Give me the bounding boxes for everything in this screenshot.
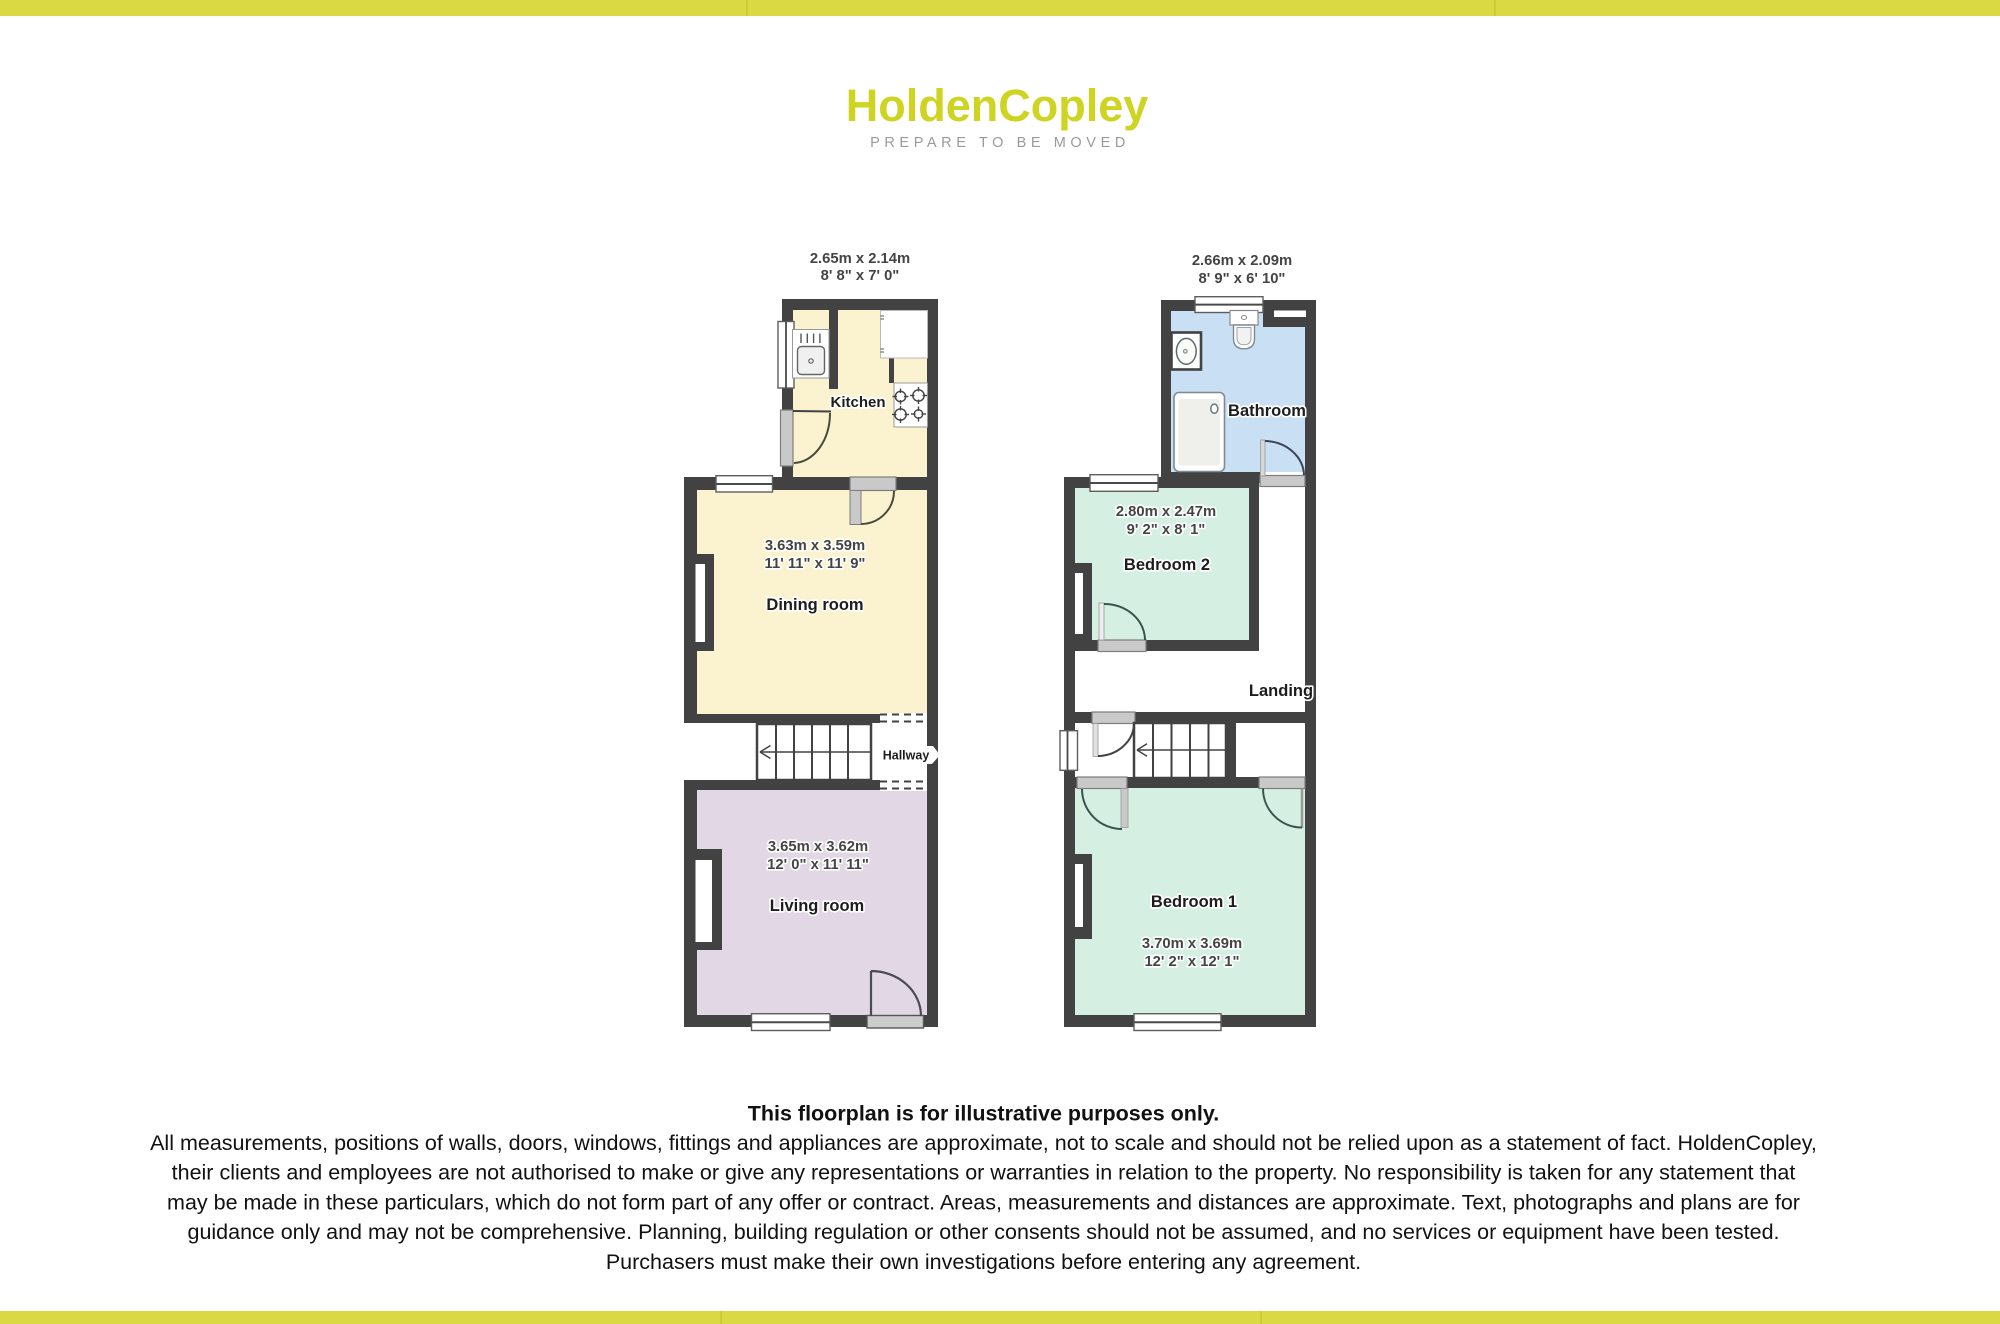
svg-text:Living room: Living room <box>770 897 864 915</box>
svg-text:9' 2" x 8' 1": 9' 2" x 8' 1" <box>1127 522 1206 538</box>
svg-text:their clients and employees ar: their clients and employees are not auth… <box>172 1161 1796 1185</box>
svg-text:Bedroom 2: Bedroom 2 <box>1124 556 1210 574</box>
svg-text:Bedroom 1: Bedroom 1 <box>1151 893 1237 911</box>
svg-text:8' 8" x 7' 0": 8' 8" x 7' 0" <box>821 268 900 284</box>
svg-text:may be made in these particula: may be made in these particulars, which … <box>167 1191 1800 1215</box>
svg-text:Hallway: Hallway <box>883 749 930 763</box>
svg-text:All measurements, positions of: All measurements, positions of walls, do… <box>150 1131 1817 1155</box>
svg-text:2.65m x 2.14m: 2.65m x 2.14m <box>810 251 910 267</box>
svg-text:2.66m x 2.09m: 2.66m x 2.09m <box>1192 253 1292 269</box>
svg-text:8' 9" x 6' 10": 8' 9" x 6' 10" <box>1199 271 1286 287</box>
svg-text:12' 2" x 12' 1": 12' 2" x 12' 1" <box>1144 954 1239 970</box>
svg-text:3.70m x 3.69m: 3.70m x 3.69m <box>1142 936 1242 952</box>
svg-text:Kitchen: Kitchen <box>830 394 885 411</box>
svg-text:This floorplan is for illustra: This floorplan is for illustrative purpo… <box>748 1102 1219 1126</box>
svg-text:PREPARE TO BE MOVED: PREPARE TO BE MOVED <box>870 135 1130 151</box>
svg-text:Landing: Landing <box>1249 682 1313 700</box>
svg-text:Purchasers must make their own: Purchasers must make their own investiga… <box>606 1250 1361 1274</box>
svg-text:Dining room: Dining room <box>766 596 863 614</box>
svg-text:3.65m x 3.62m: 3.65m x 3.62m <box>768 839 868 855</box>
svg-text:12' 0" x 11' 11": 12' 0" x 11' 11" <box>767 857 869 873</box>
svg-text:2.80m x 2.47m: 2.80m x 2.47m <box>1116 504 1216 520</box>
svg-text:guidance only and may not be c: guidance only and may not be comprehensi… <box>187 1220 1779 1244</box>
svg-text:3.63m x 3.59m: 3.63m x 3.59m <box>765 538 865 554</box>
svg-text:HoldenCopley: HoldenCopley <box>846 80 1149 131</box>
svg-text:Bathroom: Bathroom <box>1228 402 1306 420</box>
svg-text:11' 11" x 11' 9": 11' 11" x 11' 9" <box>765 556 866 572</box>
